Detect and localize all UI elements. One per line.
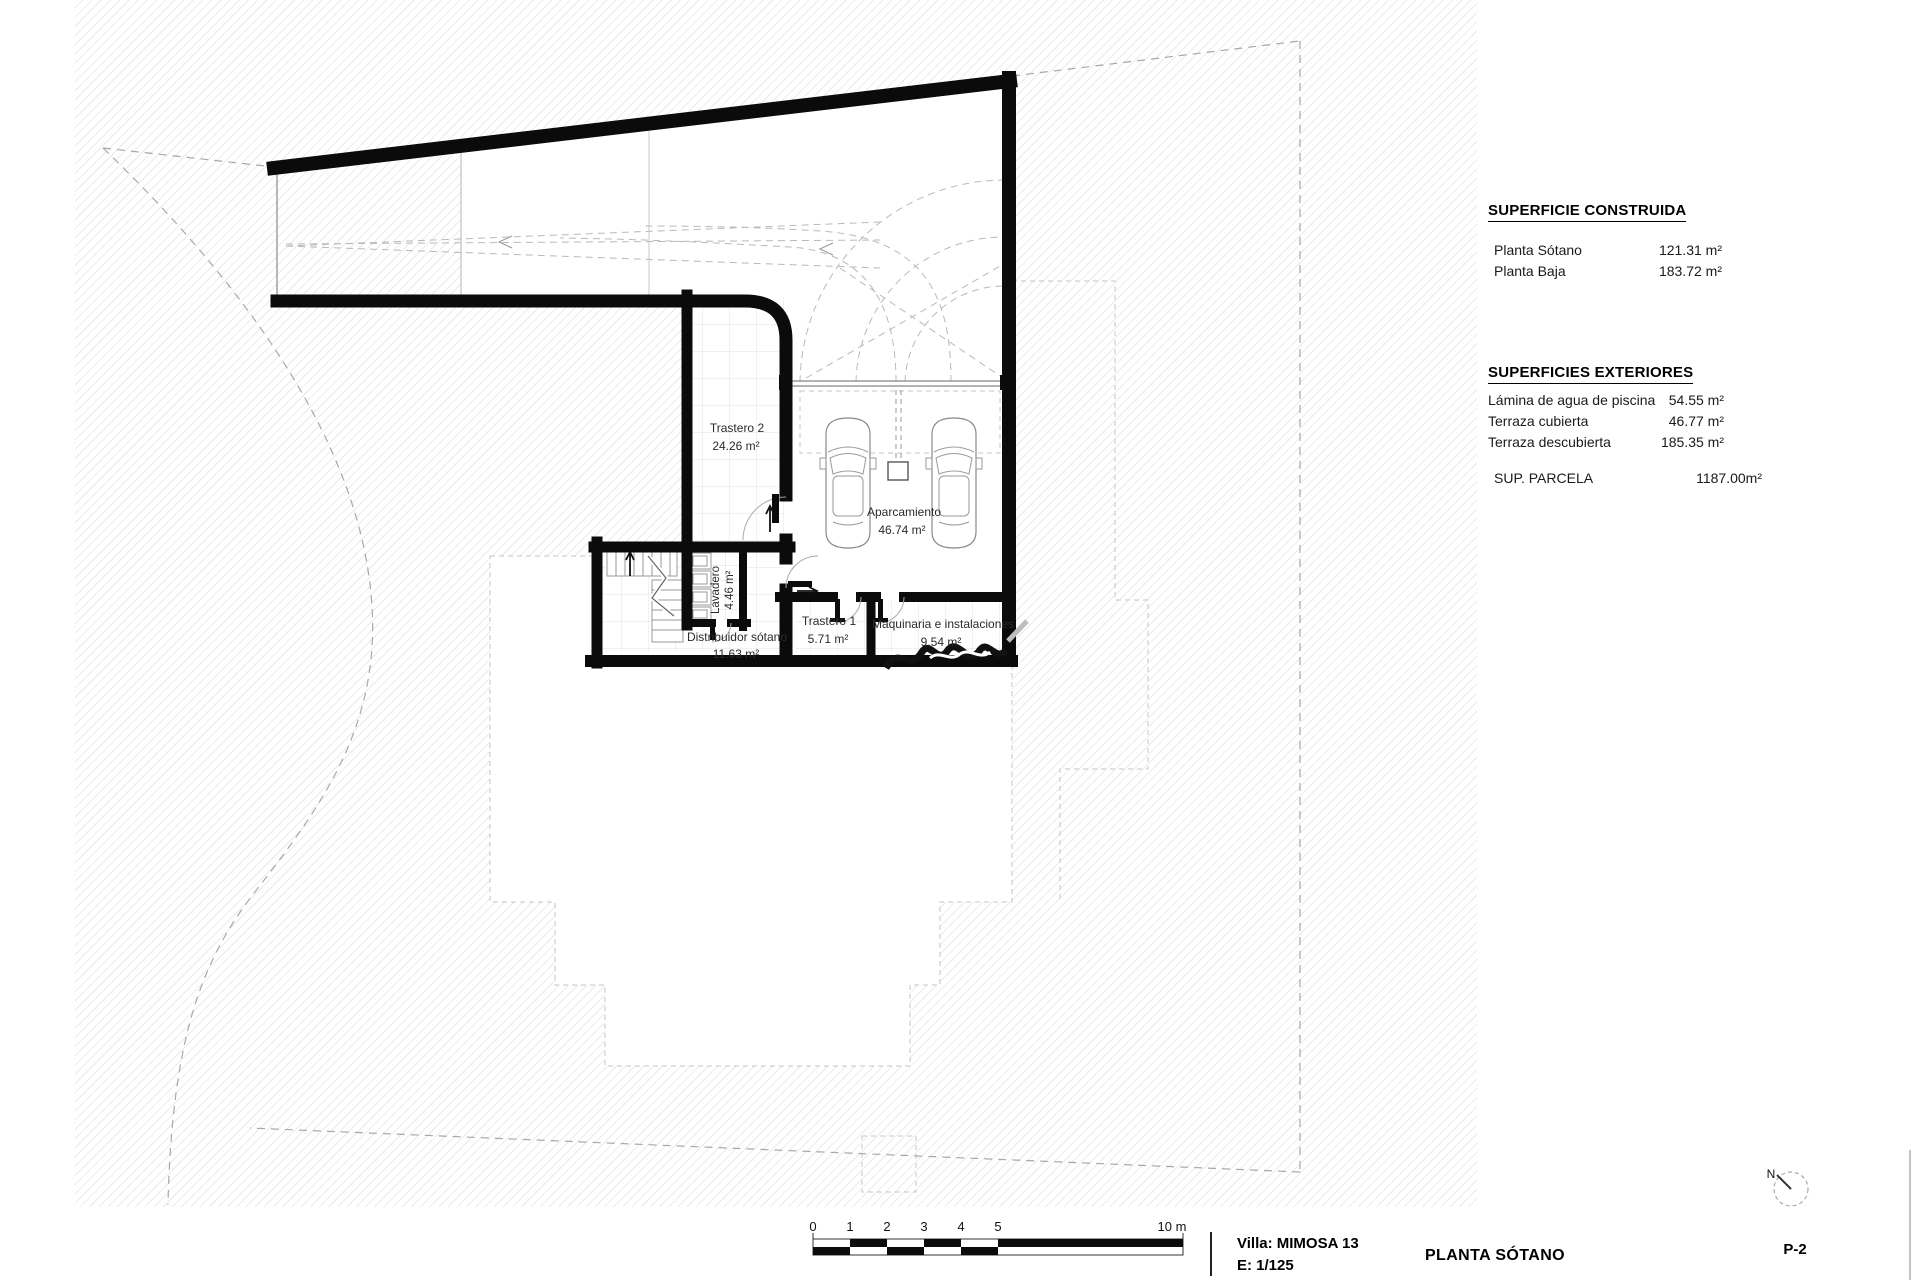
drawing-sheet: Trastero 2 24.26 m² Aparcamiento 46.74 m… (0, 0, 1920, 1280)
room-area-aparcamiento: 46.74 m² (878, 523, 925, 537)
row-value: 183.72 m² (1659, 261, 1722, 282)
scale-tick-4: 4 (957, 1219, 964, 1234)
car-1 (820, 418, 876, 548)
drawing-scale: E: 1/125 (1237, 1257, 1294, 1274)
scale-tick-5: 5 (994, 1219, 1001, 1234)
room-label-lavadero: Lavadero (710, 566, 722, 614)
car-2 (926, 418, 982, 548)
table-superficie-construida: SUPERFICIE CONSTRUIDA (1488, 202, 1686, 222)
scale-tick-1: 1 (846, 1219, 853, 1234)
floor-plan-canvas: Trastero 2 24.26 m² Aparcamiento 46.74 m… (0, 0, 1920, 1280)
scale-tick-3: 3 (920, 1219, 927, 1234)
table-title-construida: SUPERFICIE CONSTRUIDA (1488, 202, 1686, 222)
table-row: Planta Baja 183.72 m² (1494, 261, 1722, 282)
room-label-distribuidor: Distribuidor sótano (687, 630, 787, 644)
table-rows-construida: Planta Sótano 121.31 m² Planta Baja 183.… (1494, 240, 1722, 282)
room-area-maquinaria: 9.54 m² (921, 635, 962, 649)
table-title-exteriores: SUPERFICIES EXTERIORES (1488, 364, 1693, 384)
row-label: SUP. PARCELA (1494, 468, 1593, 489)
table-row: Planta Sótano 121.31 m² (1494, 240, 1722, 261)
room-label-trastero2: Trastero 2 (710, 421, 765, 435)
titleblock-divider (1210, 1232, 1212, 1276)
north-label: N (1767, 1167, 1776, 1181)
room-area-trastero1: 5.71 m² (808, 632, 849, 646)
north-arrow: N (1767, 1167, 1808, 1206)
room-label-aparcamiento: Aparcamiento (867, 505, 941, 519)
scale-tick-10m: 10 m (1158, 1219, 1187, 1234)
table-row: Terraza cubierta 46.77 m² (1488, 411, 1724, 432)
row-label: Planta Baja (1494, 261, 1566, 282)
table-superficies-exteriores: SUPERFICIES EXTERIORES (1488, 364, 1693, 384)
table-row-parcela: SUP. PARCELA 1187.00m² (1494, 468, 1762, 489)
scale-tick-0: 0 (809, 1219, 816, 1234)
table-rows-exteriores: Lámina de agua de piscina 54.55 m² Terra… (1488, 390, 1724, 453)
row-value: 121.31 m² (1659, 240, 1722, 261)
row-label: Lámina de agua de piscina (1488, 390, 1655, 411)
room-area-trastero2: 24.26 m² (712, 439, 759, 453)
row-label: Terraza descubierta (1488, 432, 1611, 453)
row-value: 54.55 m² (1669, 390, 1724, 411)
row-label: Planta Sótano (1494, 240, 1582, 261)
room-area-lavadero: 4.46 m² (724, 570, 736, 609)
sheet-title: PLANTA SÓTANO (1380, 1247, 1610, 1265)
scale-bar: 0 1 2 3 4 5 10 m (809, 1219, 1186, 1255)
table-row: SUP. PARCELA 1187.00m² (1494, 468, 1762, 489)
scale-tick-2: 2 (883, 1219, 890, 1234)
row-value: 1187.00m² (1696, 468, 1762, 489)
room-area-distribuidor: 11.63 m² (713, 647, 759, 661)
project-title: Villa: MIMOSA 13 (1237, 1235, 1359, 1252)
row-value: 46.77 m² (1669, 411, 1724, 432)
row-value: 185.35 m² (1661, 432, 1724, 453)
table-row: Terraza descubierta 185.35 m² (1488, 432, 1724, 453)
row-label: Terraza cubierta (1488, 411, 1588, 432)
sheet-number: P-2 (1770, 1241, 1820, 1258)
room-label-maquinaria: Maquinaria e instalaciones (872, 617, 1014, 631)
table-row: Lámina de agua de piscina 54.55 m² (1488, 390, 1724, 411)
room-label-trastero1: Trastero 1 (802, 614, 857, 628)
